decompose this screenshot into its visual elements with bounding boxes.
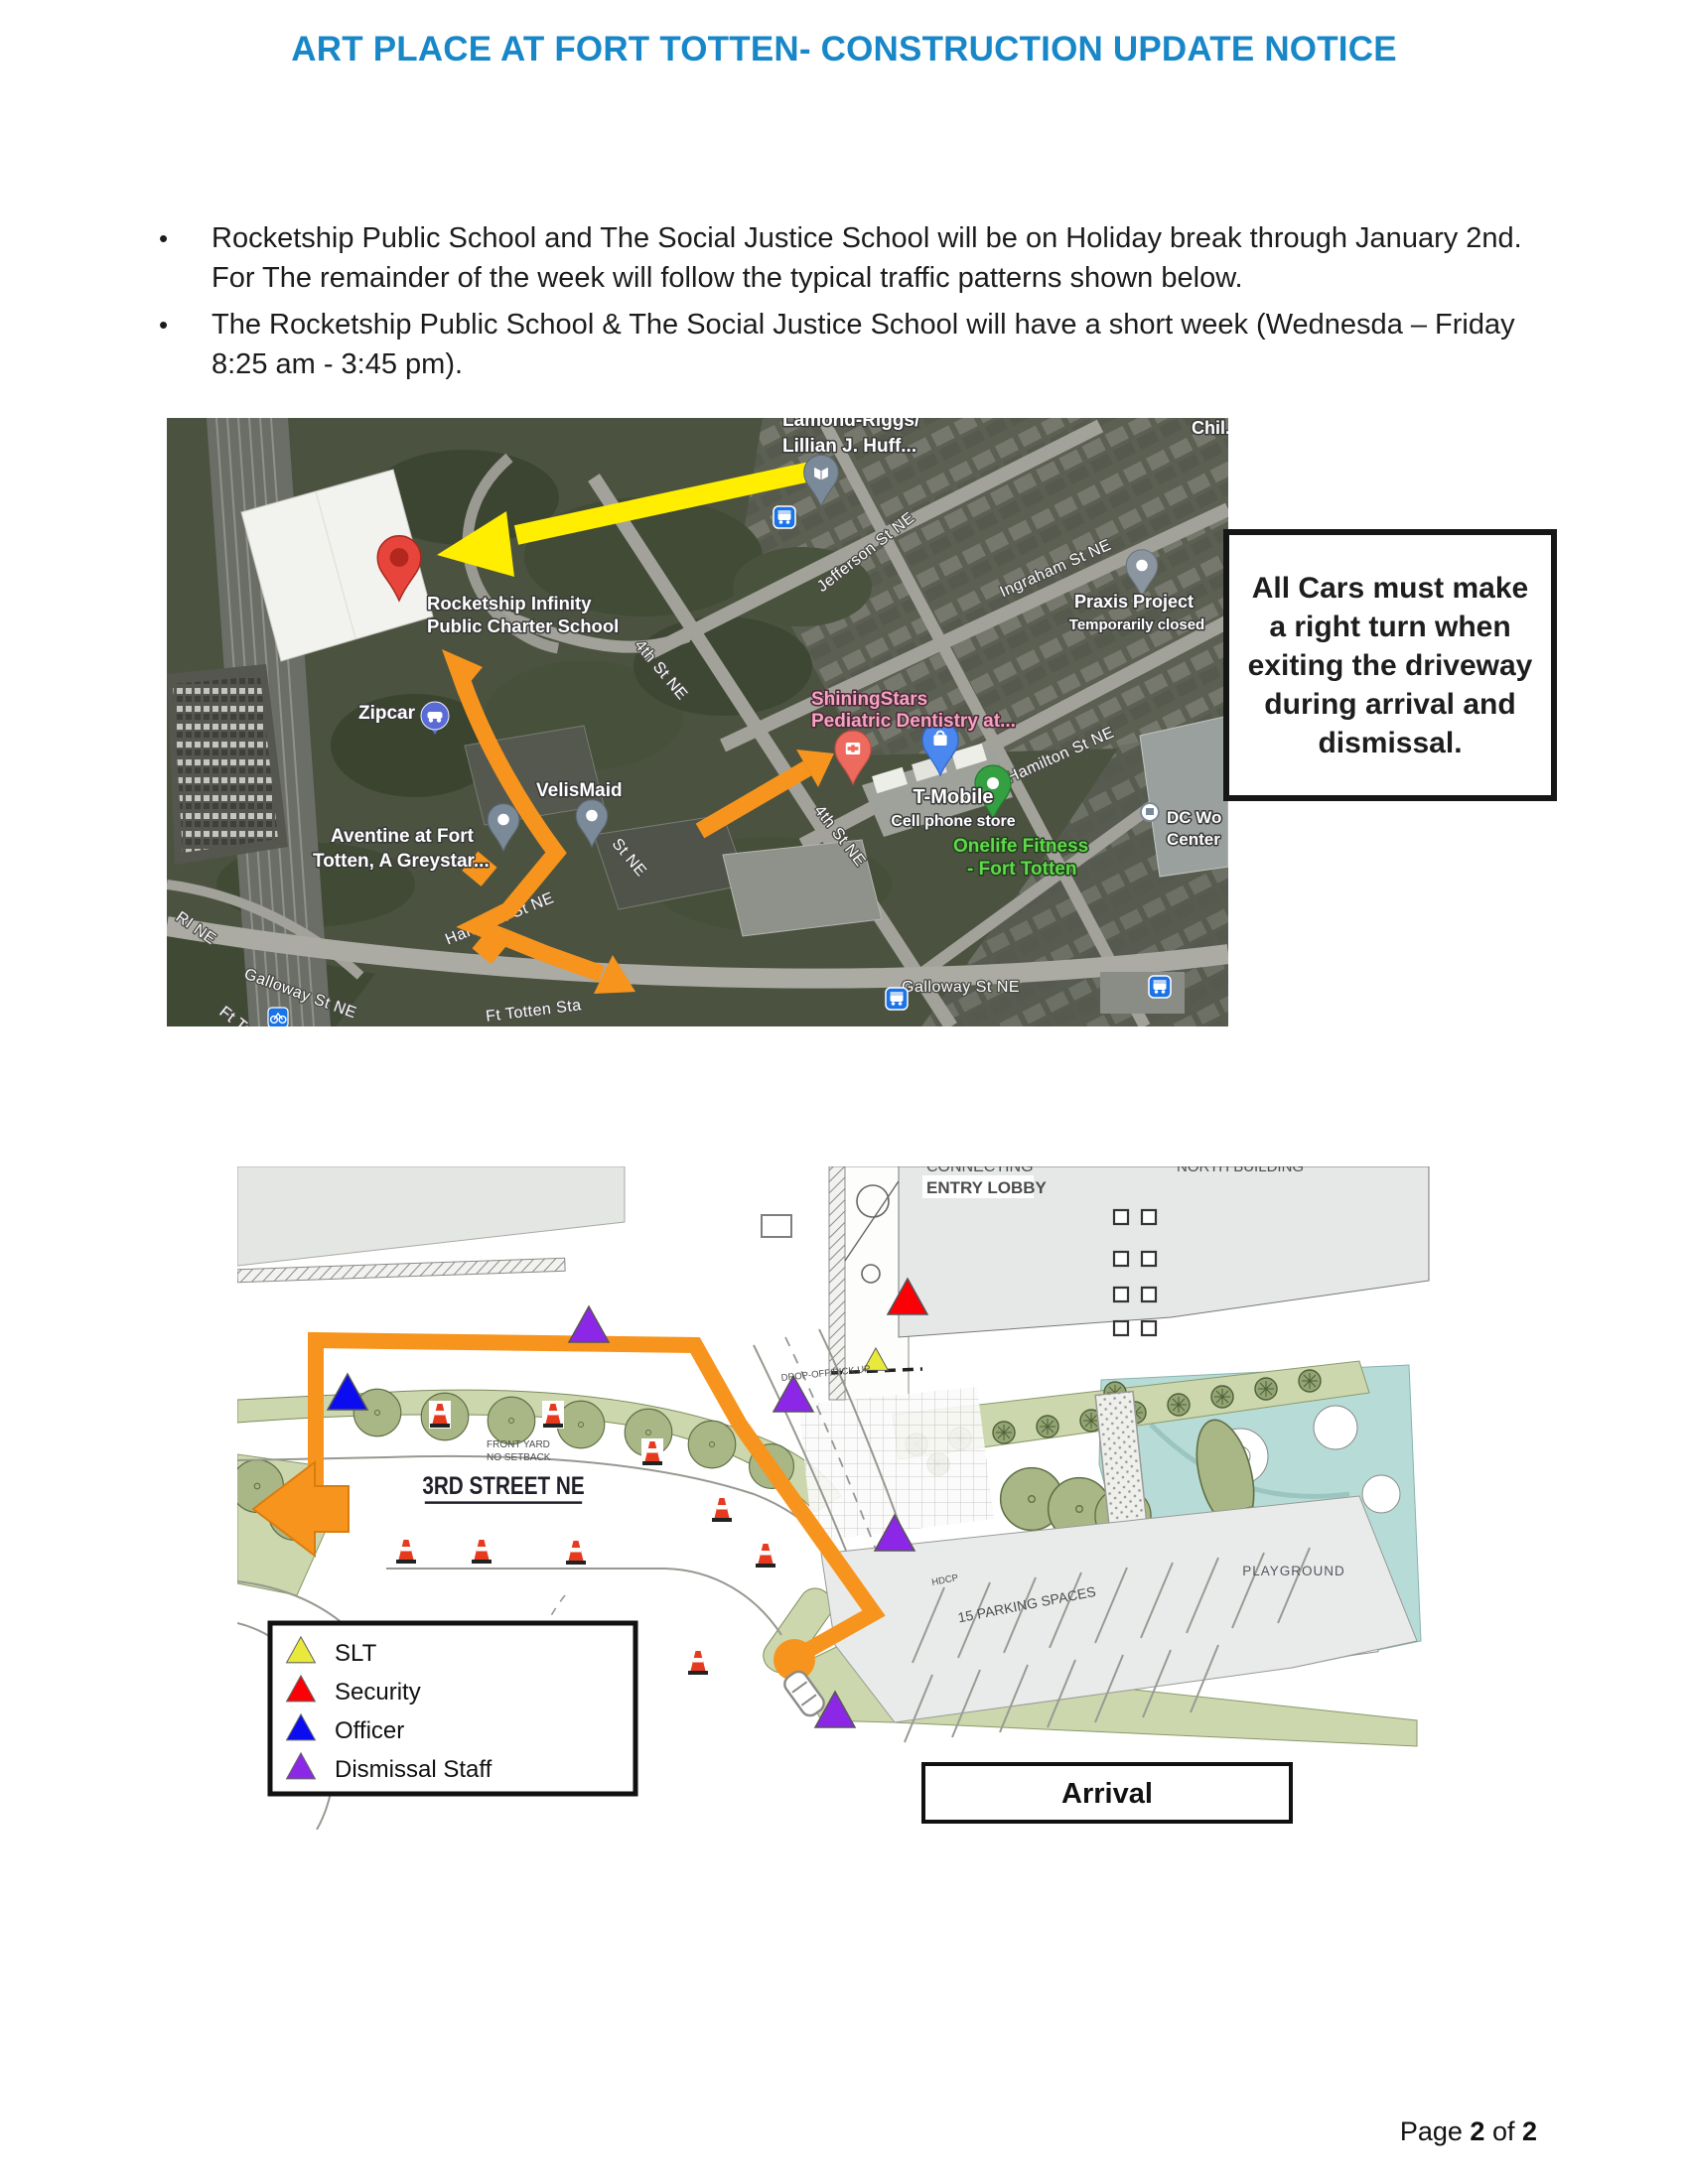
footer-page-num: 2 <box>1470 2116 1484 2146</box>
plan-label: FRONT YARD <box>487 1439 550 1450</box>
legend-label: SLT <box>335 1640 377 1667</box>
poi-label: T-Mobile <box>913 786 993 808</box>
poi-label: Lillian J. Huff... <box>782 436 916 457</box>
street-label: Galloway St NE <box>902 979 1020 996</box>
plan-label: CONNECTING <box>926 1166 1034 1175</box>
poi-label: Praxis Project <box>1074 592 1194 612</box>
plan-label: 3RD STREET NE <box>422 1471 584 1499</box>
poi-label: Cell phone store <box>891 813 1015 830</box>
poi-label: Public Charter School <box>427 615 619 636</box>
bus-stop-icon <box>1149 976 1171 998</box>
map-legend: SLT Security Officer Dismissal Staff <box>270 1623 635 1794</box>
poi-label: Temporarily closed <box>1069 616 1204 633</box>
bullet-item: • Rocketship Public School and The Socia… <box>159 218 1557 298</box>
dc-center-icon <box>1141 803 1159 821</box>
poi-label: Onelife Fitness <box>953 836 1088 857</box>
satellite-map-svg: Jefferson St NE Ingraham St NE 4th St NE… <box>167 418 1228 1026</box>
poi-label: Pediatric Dentistry at... <box>811 711 1016 732</box>
poi-label: DC Wo <box>1167 808 1221 827</box>
poi-label: ShiningStars <box>811 689 927 710</box>
arrival-box: Arrival <box>923 1764 1291 1822</box>
site-plan-image: CONNECTING ENTRY LOBBY NORTH BUILDING 3R… <box>237 1166 1453 1830</box>
bullet-text: Rocketship Public School and The Social … <box>211 218 1557 298</box>
satellite-map-image: Jefferson St NE Ingraham St NE 4th St NE… <box>167 418 1228 1026</box>
map-terrain <box>167 418 1228 1026</box>
bike-share-icon <box>268 1008 288 1026</box>
legend-label: Dismissal Staff <box>335 1756 492 1783</box>
legend-label: Officer <box>335 1717 404 1744</box>
page-number: Page 2 of 2 <box>1400 2116 1537 2147</box>
footer-text: Page <box>1400 2116 1471 2146</box>
plan-label: ENTRY LOBBY <box>926 1178 1048 1197</box>
poi-label: Zipcar <box>358 703 416 724</box>
bullet-text: The Rocketship Public School & The Socia… <box>211 305 1557 384</box>
page-title: ART PLACE AT FORT TOTTEN- CONSTRUCTION U… <box>0 30 1688 69</box>
footer-text: of <box>1484 2116 1522 2146</box>
bus-stop-icon <box>886 988 908 1010</box>
poi-label: Chil... <box>1192 418 1228 438</box>
street-name-group: 3RD STREET NE <box>422 1471 584 1502</box>
footer-total: 2 <box>1522 2116 1537 2146</box>
poi-label: Rocketship Infinity <box>427 593 592 614</box>
bullet-list: • Rocketship Public School and The Socia… <box>159 218 1557 391</box>
bullet-marker-icon: • <box>159 305 211 384</box>
poi-label: Lamond-Riggs/ <box>782 418 920 431</box>
plan-label: NO SETBACK <box>487 1452 551 1463</box>
document-page: ART PLACE AT FORT TOTTEN- CONSTRUCTION U… <box>0 0 1688 2184</box>
poi-label: Totten, A Greystar... <box>313 851 490 872</box>
plan-label: PLAYGROUND <box>1242 1564 1345 1578</box>
right-turn-callout-box: All Cars must make a right turn when exi… <box>1223 529 1557 801</box>
callout-text: All Cars must make a right turn when exi… <box>1243 569 1537 762</box>
bus-stop-icon <box>774 506 795 528</box>
site-plan-svg: CONNECTING ENTRY LOBBY NORTH BUILDING 3R… <box>237 1166 1453 1830</box>
poi-label: - Fort Totten <box>967 859 1076 880</box>
bullet-marker-icon: • <box>159 218 211 298</box>
legend-label: Security <box>335 1679 421 1706</box>
arrival-label: Arrival <box>1061 1778 1153 1810</box>
plan-label: NORTH BUILDING <box>1177 1166 1304 1175</box>
poi-label: Aventine at Fort <box>331 826 475 847</box>
poi-label: Center <box>1167 830 1220 849</box>
poi-label: VelisMaid <box>536 780 623 801</box>
bullet-item: • The Rocketship Public School & The Soc… <box>159 305 1557 384</box>
